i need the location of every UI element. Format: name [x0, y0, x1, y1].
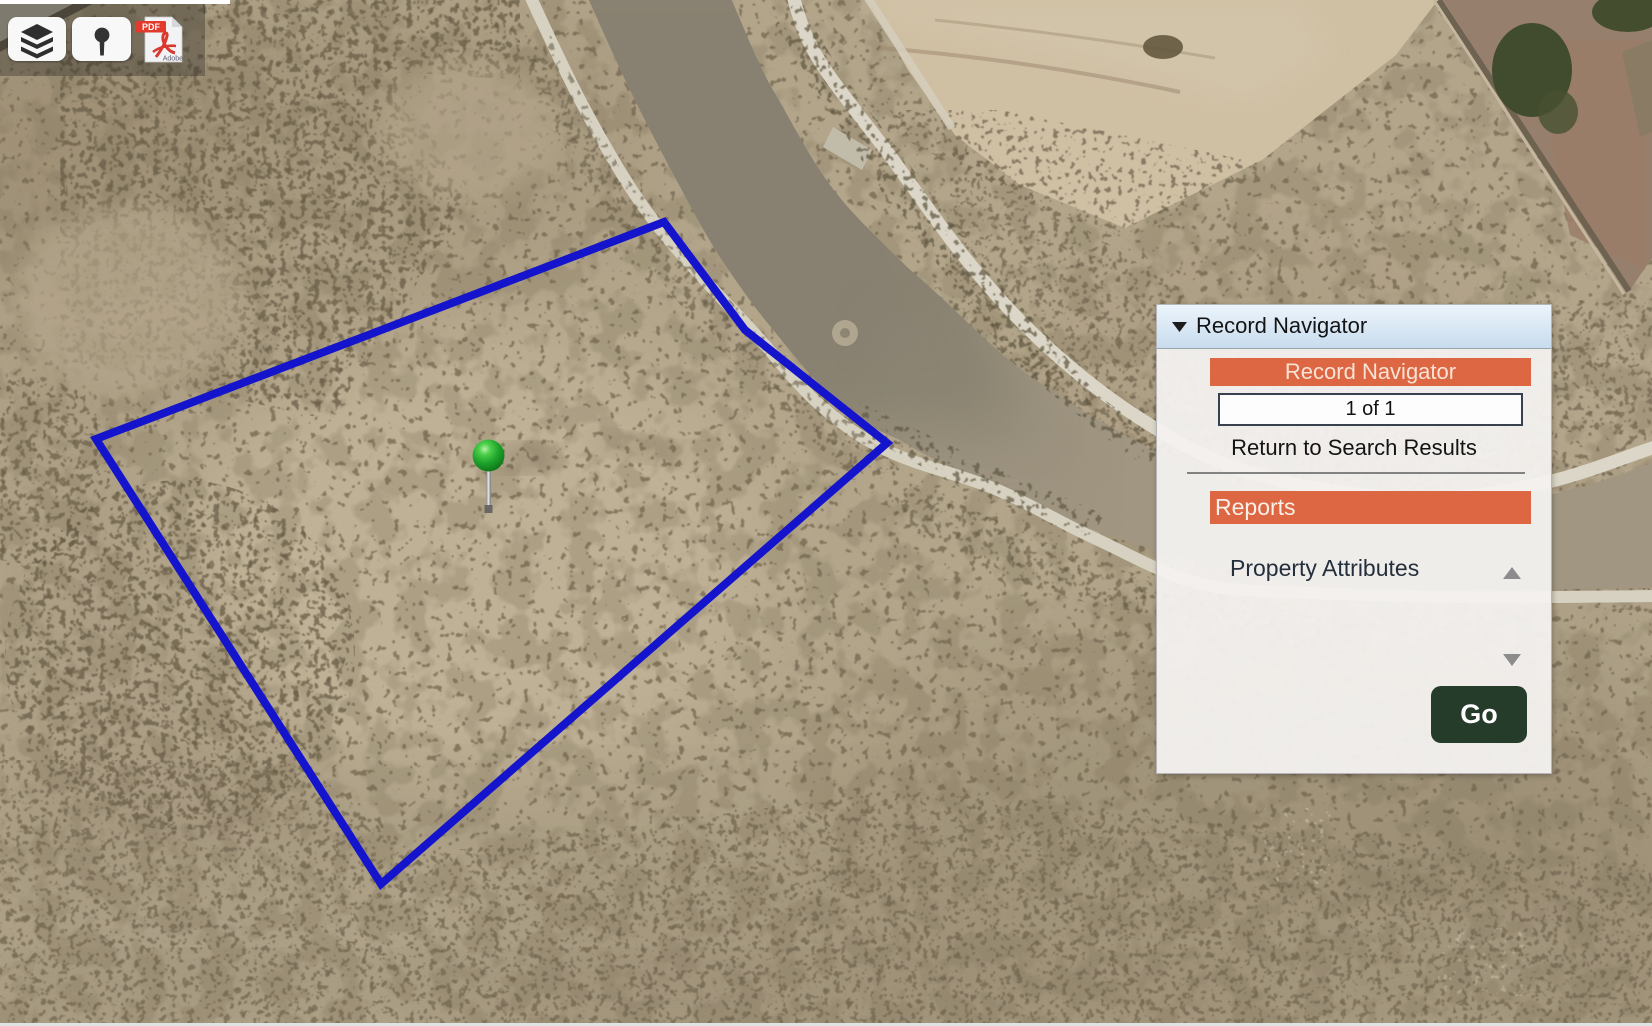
- svg-text:PDF: PDF: [142, 22, 161, 32]
- svg-text:Adobe: Adobe: [163, 56, 183, 63]
